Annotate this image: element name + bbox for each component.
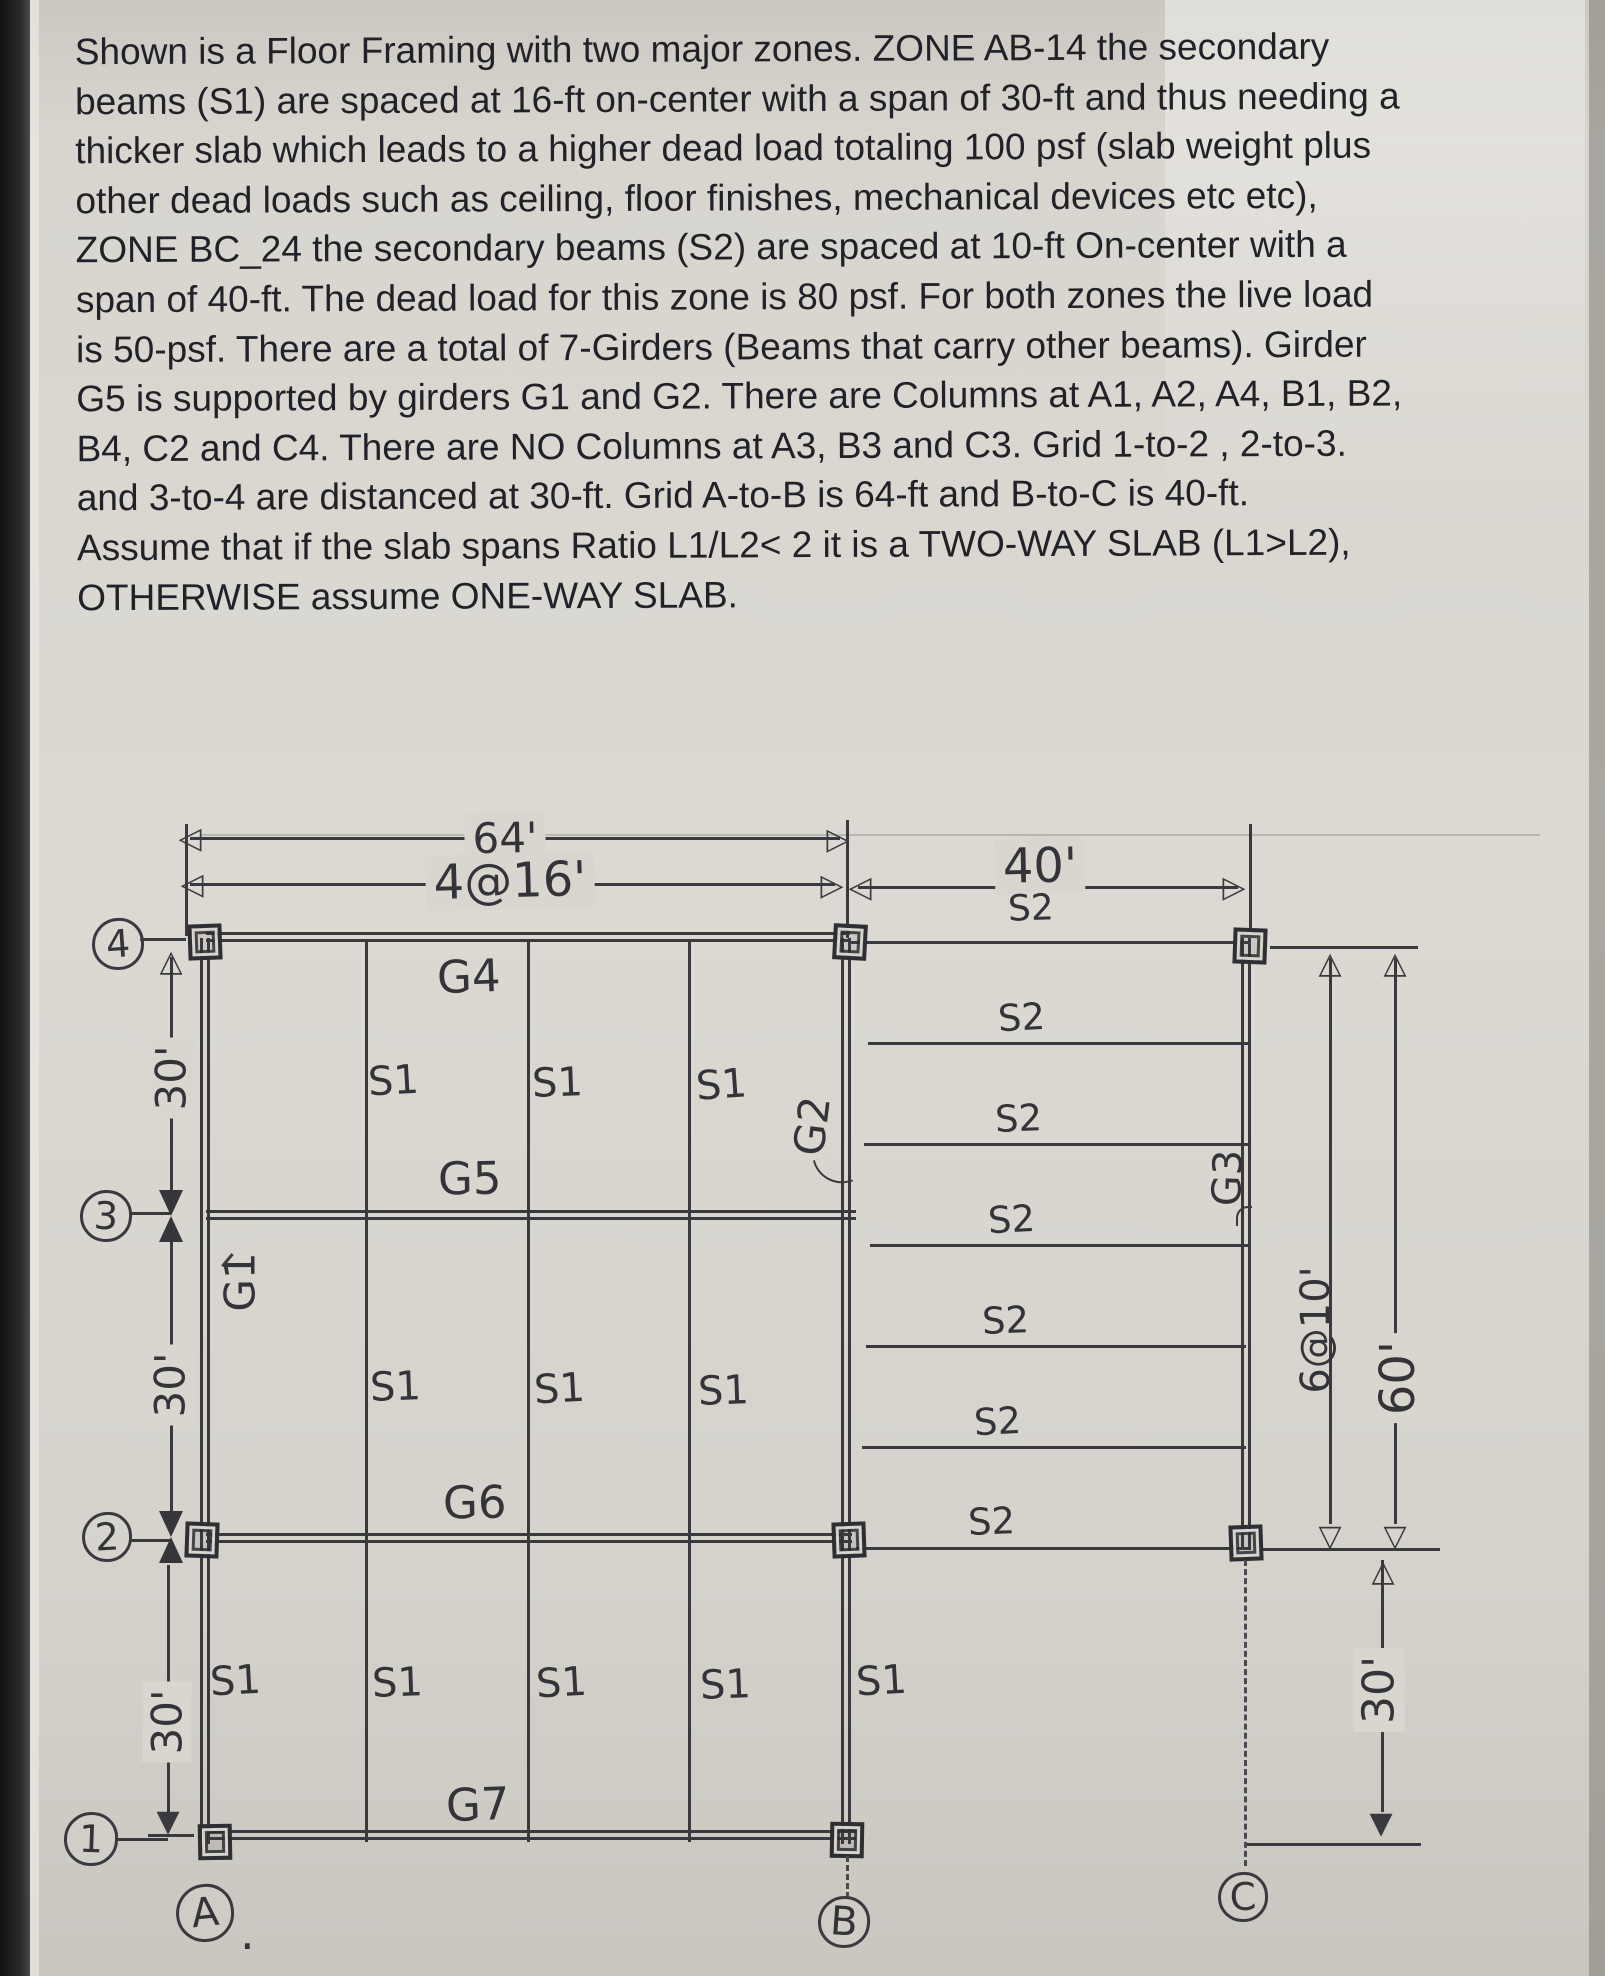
dim-arrow-up-icon: △ xyxy=(1371,1557,1394,1587)
grid-bubble-col-c: C xyxy=(1217,1871,1270,1924)
column-a1 xyxy=(198,1824,233,1861)
beam-s1-line xyxy=(527,940,530,1842)
dim-arrow-left-icon: ◁ xyxy=(180,870,203,900)
dim-bowtie-marker xyxy=(159,1216,183,1242)
grid-bubble-label: 4 xyxy=(104,921,131,967)
beam-s2-line xyxy=(866,1345,1246,1348)
beam-s2-line xyxy=(864,1143,1248,1146)
pencil-guide-line xyxy=(200,834,1540,836)
paper-edge-highlight xyxy=(30,0,39,1976)
grid-bubble-a-period: . xyxy=(240,1906,255,1960)
grid-bubble-label: A xyxy=(189,1889,221,1938)
dim-arrow-right-icon: ▷ xyxy=(826,825,849,855)
column-a2 xyxy=(184,1521,219,1558)
dim-text-40ft: 40' xyxy=(994,837,1085,895)
beam-label-s1: S1 xyxy=(531,1059,583,1107)
grid-bubble-label: 1 xyxy=(78,1817,104,1862)
beam-s2-line xyxy=(868,1042,1248,1045)
girder-g2-line xyxy=(841,938,851,1844)
girder-label-g5: G5 xyxy=(438,1151,502,1205)
scan-right-edge xyxy=(1589,0,1605,1976)
beam-label-s2: S2 xyxy=(967,1499,1016,1544)
dim-text-left-30ft: 30' xyxy=(147,1038,196,1119)
column-c2 xyxy=(1228,1524,1263,1561)
extension-line-grid2-right xyxy=(1262,1548,1440,1551)
dashed-line-grid-c xyxy=(1244,1560,1247,1866)
paragraph-line: and 3-to-4 are distanced at 30-ft. Grid … xyxy=(77,467,1577,523)
column-b4 xyxy=(832,923,868,961)
girder-label-g3: G3 xyxy=(1204,1149,1252,1207)
paragraph-line: other dead loads such as ceiling, floor … xyxy=(75,170,1575,226)
beam-label-s1: S1 xyxy=(855,1657,908,1706)
dim-arrow-left-icon: ◁ xyxy=(848,873,871,903)
paragraph-line: Shown is a Floor Framing with two major … xyxy=(75,21,1575,77)
paragraph-line: Assume that if the slab spans Ratio L1/L… xyxy=(77,517,1577,573)
dim-text-left-30ft: 30' xyxy=(143,1682,192,1763)
g3-leader-hook xyxy=(1236,1206,1252,1226)
beam-label-s1: S1 xyxy=(369,1363,421,1411)
column-c4 xyxy=(1232,927,1267,964)
beam-label-s2: S2 xyxy=(997,995,1046,1040)
dim-text-right-30ft: 30' xyxy=(1354,1648,1405,1732)
grid-tick xyxy=(118,1838,168,1841)
girder-g1-line xyxy=(200,938,210,1844)
dim-line-6at10ft xyxy=(1329,958,1332,1524)
paragraph-line: ZONE BC_24 the secondary beams (S2) are … xyxy=(76,219,1576,275)
beam-label-s2: S2 xyxy=(1007,887,1054,930)
grid-bubble-row-3: 3 xyxy=(79,1189,134,1244)
grid-bubble-label: C xyxy=(1229,1874,1258,1919)
girder-label-g6: G6 xyxy=(443,1475,507,1529)
grid-bubble-col-a: A xyxy=(173,1881,237,1945)
dim-arrow-up-icon: △ xyxy=(159,947,182,977)
scan-left-edge xyxy=(0,0,30,1976)
beam-label-s1: S1 xyxy=(699,1661,751,1709)
dim-arrow-down-icon: ▽ xyxy=(1318,1522,1341,1552)
beam-label-s2: S2 xyxy=(973,1399,1022,1444)
scanned-document-page: Shown is a Floor Framing with two major … xyxy=(0,0,1605,1976)
beam-label-s2: S2 xyxy=(981,1298,1030,1343)
dim-text-60ft: 60' xyxy=(1370,1333,1426,1423)
beam-s1-line xyxy=(688,940,691,1842)
grid-bubble-row-4: 4 xyxy=(90,916,146,972)
paragraph-line: B4, C2 and C4. There are NO Columns at A… xyxy=(76,417,1576,473)
extension-line-grid-c xyxy=(1249,824,1252,934)
paragraph-line: beams (S1) are spaced at 16-ft on-center… xyxy=(75,70,1575,126)
grid-tick xyxy=(130,1212,170,1215)
beam-s2-line xyxy=(870,1244,1248,1247)
beam-label-s1: S1 xyxy=(367,1057,420,1106)
beam-s2-line xyxy=(862,1446,1246,1449)
grid-bubble-row-2: 2 xyxy=(81,1511,134,1564)
girder-g7-line xyxy=(210,1830,856,1840)
dim-tick-grid1-left xyxy=(148,1834,194,1837)
grid-tick xyxy=(131,1539,171,1542)
extension-line-grid1-right xyxy=(1247,1843,1421,1846)
grid-bubble-label: B xyxy=(829,1898,860,1946)
problem-statement: Shown is a Floor Framing with two major … xyxy=(75,21,1578,623)
dim-arrow-left-icon: ◁ xyxy=(178,824,201,854)
dim-text-left-30ft: 30' xyxy=(146,1345,195,1426)
beam-label-s1: S1 xyxy=(209,1657,262,1706)
beam-label-s2: S2 xyxy=(987,1197,1036,1242)
dim-arrow-up-icon: △ xyxy=(1318,949,1341,979)
grid-bubble-col-b: B xyxy=(816,1894,872,1950)
beam-label-s1: S1 xyxy=(371,1659,423,1707)
beam-s2-line xyxy=(856,1547,1248,1550)
girder-label-g2: G2 xyxy=(784,1094,840,1159)
beam-label-s1: S1 xyxy=(533,1365,586,1414)
dim-bowtie-marker xyxy=(159,1511,183,1537)
dim-arrow-down-icon: ▽ xyxy=(1383,1522,1406,1552)
girder-g5-line xyxy=(206,1210,856,1220)
dim-arrow-down-icon: ▼ xyxy=(1369,1809,1392,1839)
dim-line-60ft xyxy=(1394,958,1397,1524)
dashed-line-grid-b xyxy=(846,1856,849,1898)
column-b1 xyxy=(830,1822,865,1859)
grid-tick xyxy=(140,938,186,941)
grid-bubble-row-1: 1 xyxy=(63,1811,119,1867)
dim-arrow-down-icon: ▼ xyxy=(156,1807,179,1837)
paragraph-line: G5 is supported by girders G1 and G2. Th… xyxy=(76,368,1576,424)
column-a4 xyxy=(187,923,222,960)
dim-arrow-right-icon: ▷ xyxy=(820,871,843,901)
paragraph-line: is 50-psf. There are a total of 7-Girder… xyxy=(76,318,1576,374)
dim-text-4at16ft: 4@16' xyxy=(425,851,595,911)
dim-arrow-right-icon: ▷ xyxy=(1222,873,1245,903)
beam-label-s1: S1 xyxy=(535,1659,588,1708)
column-b2 xyxy=(831,1521,866,1558)
paragraph-line: span of 40-ft. The dead load for this zo… xyxy=(76,269,1576,325)
girder-label-g7: G7 xyxy=(445,1777,510,1832)
beam-label-s1: S1 xyxy=(694,1060,748,1109)
girder-label-g4: G4 xyxy=(436,949,501,1004)
beam-s2-line xyxy=(850,941,1250,944)
paragraph-line: thicker slab which leads to a higher dea… xyxy=(75,120,1575,176)
dim-text-6at10ft: 6@10' xyxy=(1293,1266,1339,1393)
beam-label-s2: S2 xyxy=(994,1096,1043,1141)
beam-label-s1: S1 xyxy=(697,1367,749,1415)
grid-bubble-label: 3 xyxy=(93,1193,119,1238)
dim-arrow-up-icon: △ xyxy=(1383,949,1406,979)
paragraph-line: OTHERWISE assume ONE-WAY SLAB. xyxy=(77,566,1577,622)
grid-bubble-label: 2 xyxy=(94,1514,120,1559)
